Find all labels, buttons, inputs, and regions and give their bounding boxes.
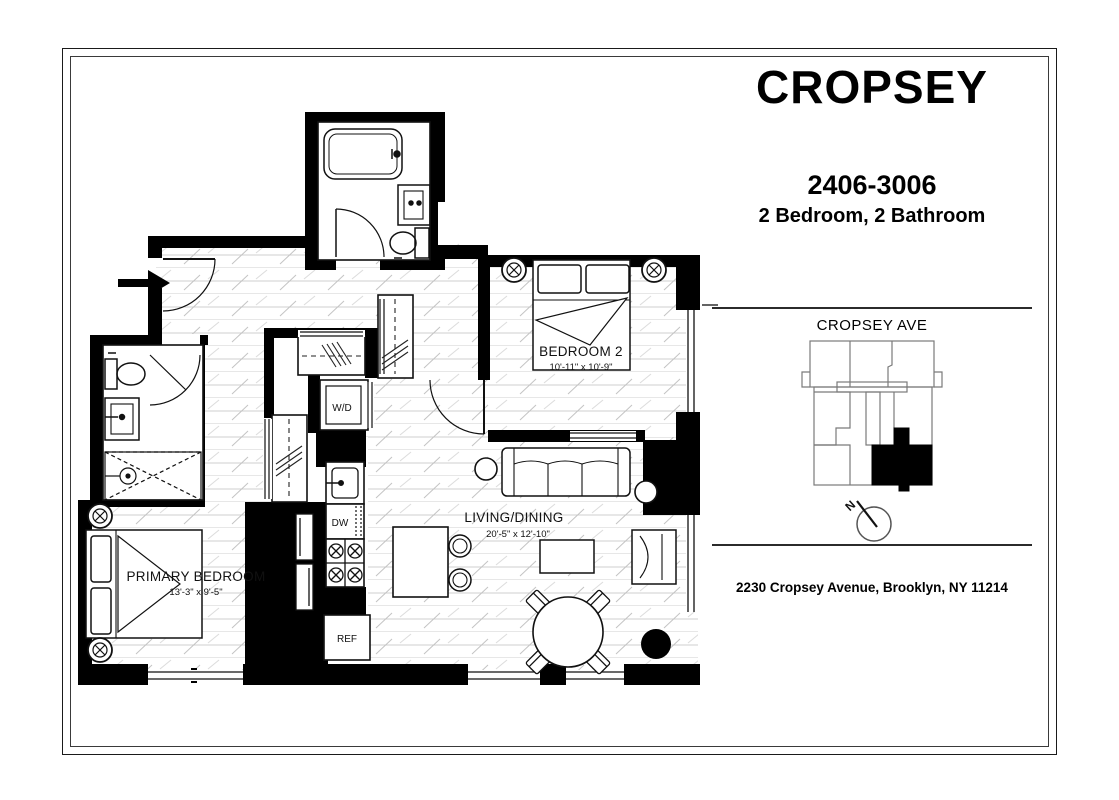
street-label: CROPSEY AVE	[712, 317, 1032, 334]
coffee-table	[540, 540, 594, 573]
floorplan-page: { "header": { "building_name": "CROPSEY"…	[0, 0, 1119, 800]
building-address: 2230 Cropsey Avenue, Brooklyn, NY 11214	[692, 580, 1052, 595]
bathroom2-interior	[103, 345, 203, 500]
info-panel: CROPSEY 2406-3006 2 Bedroom, 2 Bathroom	[712, 60, 1032, 228]
refrigerator-label: REF	[337, 634, 357, 645]
primary-bedroom-label: PRIMARY BEDROOM	[126, 569, 265, 584]
dining-table	[533, 597, 603, 667]
dining-set	[526, 590, 611, 675]
column	[641, 629, 671, 659]
armchair	[632, 530, 676, 584]
sofa	[502, 448, 630, 496]
key-plan-top-block	[810, 341, 934, 387]
unit-number: 2406-3006	[712, 170, 1032, 201]
living-dining-dimensions: 20'-5" x 12'-10"	[486, 529, 550, 540]
key-plan-unit-highlight	[872, 428, 932, 491]
hall-floor	[203, 330, 273, 505]
bed-primary	[86, 530, 202, 638]
washer-dryer-label: W/D	[332, 403, 351, 414]
bedroom2-label: BEDROOM 2	[539, 344, 623, 359]
building-title: CROPSEY	[712, 60, 1032, 114]
living-dining-label: LIVING/DINING	[464, 510, 563, 525]
bedroom2-dimensions: 10'-11" x 10'-9"	[549, 362, 612, 373]
key-plan	[797, 340, 947, 495]
kitchen-island	[393, 527, 448, 597]
unit-type: 2 Bedroom, 2 Bathroom	[712, 205, 1032, 228]
dishwasher-label: DW	[332, 518, 349, 529]
primary-bedroom-dimensions: 13'-3" x 9'-5"	[169, 587, 222, 598]
north-arrow-icon: N	[838, 492, 902, 552]
divider-top	[712, 307, 1032, 309]
divider-bottom	[712, 544, 1032, 546]
floor-plan: BEDROOM 2 10'-11" x 10'-9" PRIMARY BEDRO…	[78, 112, 718, 697]
compass-n-label: N	[842, 498, 858, 514]
